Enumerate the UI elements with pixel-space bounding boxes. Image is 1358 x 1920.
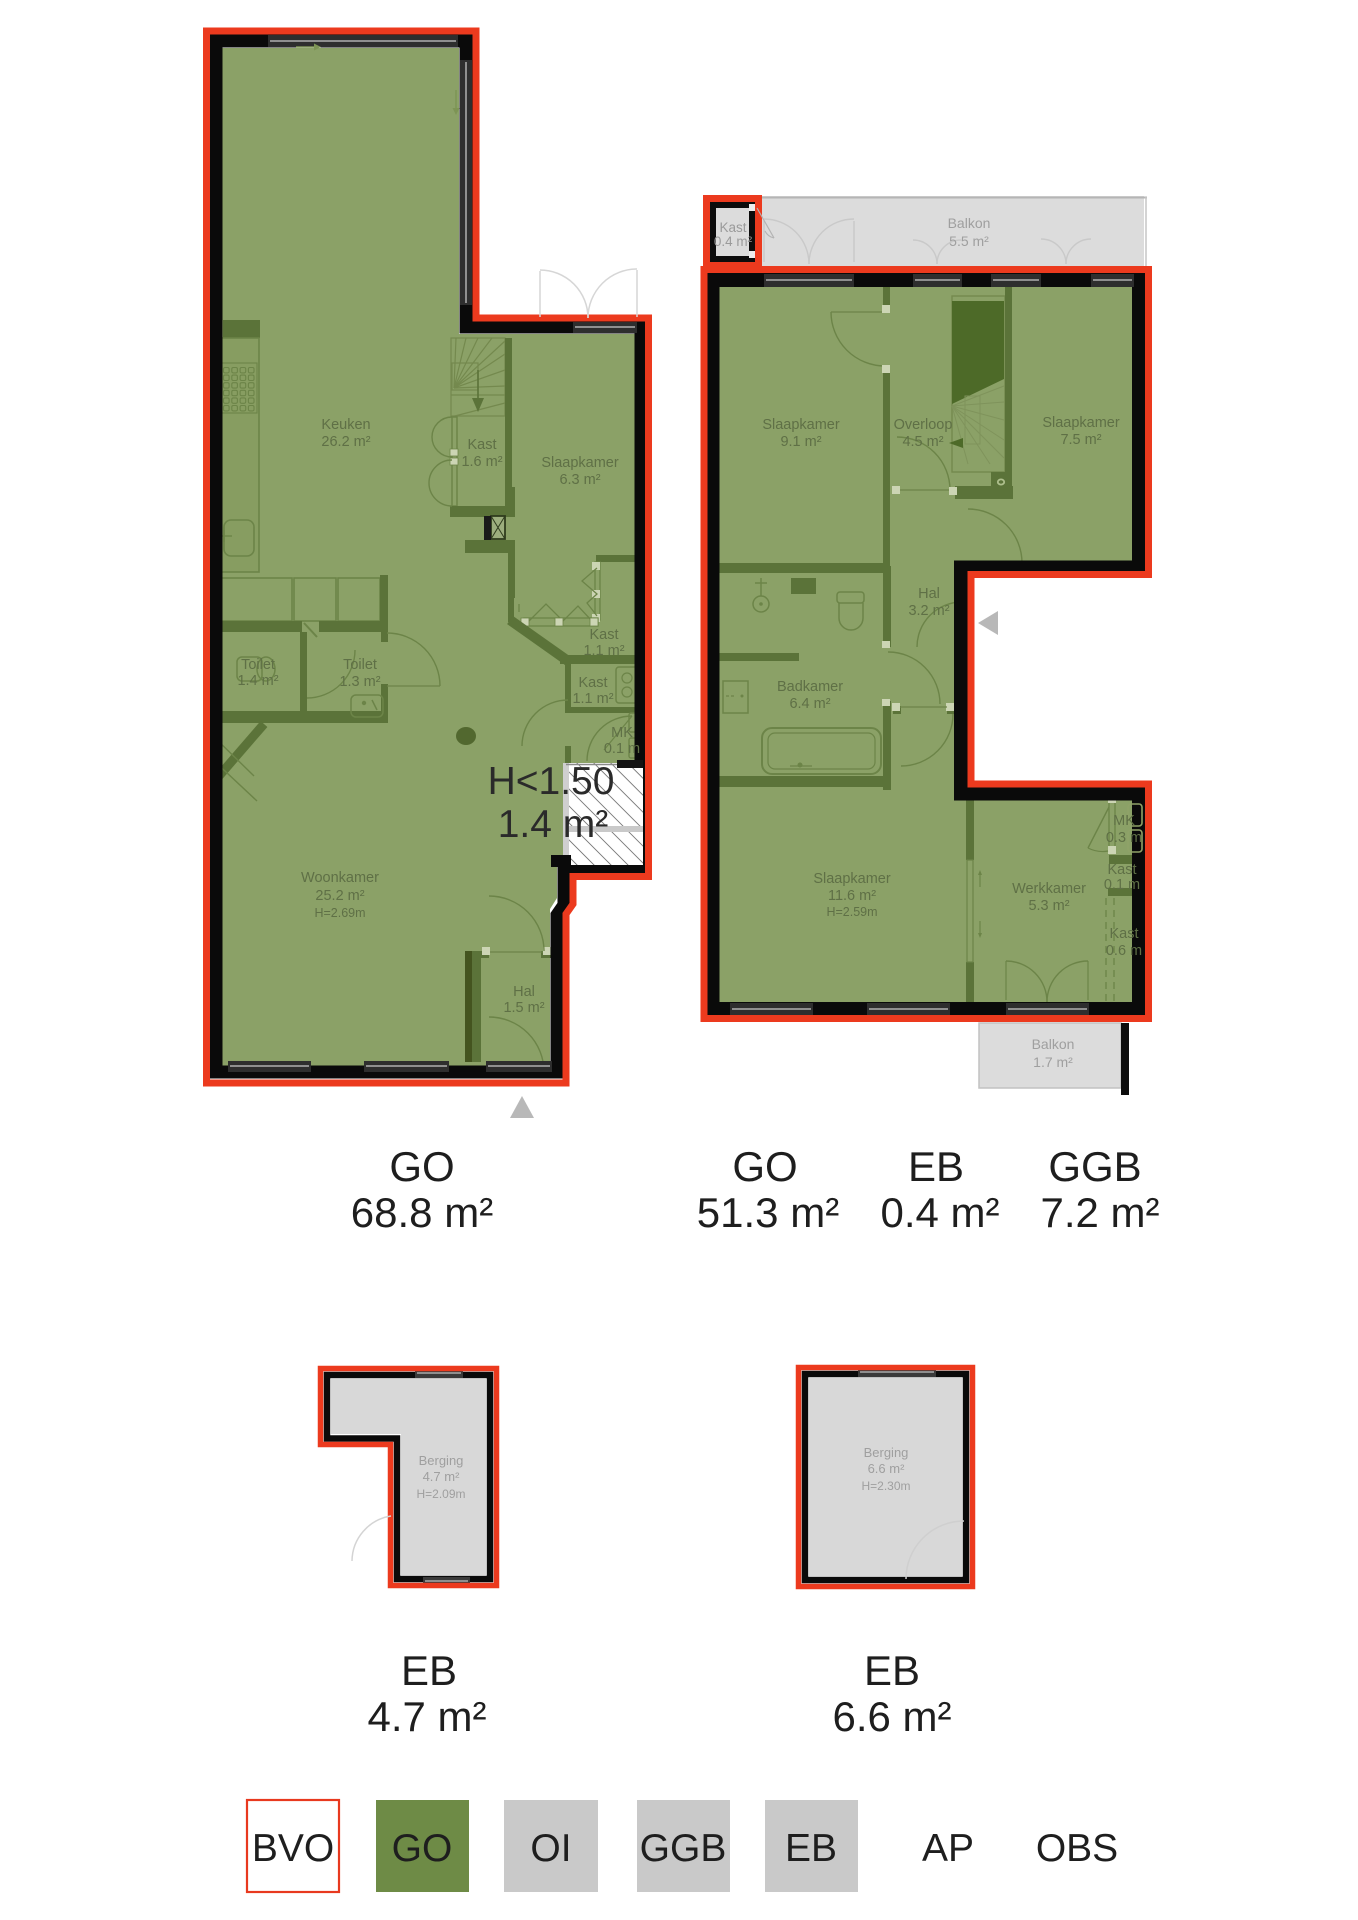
svg-text:Badkamer: Badkamer <box>777 679 843 695</box>
svg-text:5.3 m²: 5.3 m² <box>1028 898 1069 914</box>
svg-text:5.5 m²: 5.5 m² <box>949 233 989 249</box>
svg-text:H=2.30m: H=2.30m <box>861 1479 910 1493</box>
svg-text:GO: GO <box>732 1143 797 1190</box>
svg-text:AP: AP <box>922 1827 974 1870</box>
svg-text:GGB: GGB <box>1048 1143 1141 1190</box>
svg-text:MK: MK <box>611 725 633 741</box>
svg-text:7.5 m²: 7.5 m² <box>1060 432 1101 448</box>
svg-text:1.3 m²: 1.3 m² <box>339 674 380 690</box>
svg-text:4.7 m²: 4.7 m² <box>367 1693 486 1740</box>
svg-text:26.2 m²: 26.2 m² <box>321 434 370 450</box>
svg-text:MK: MK <box>1113 813 1135 829</box>
svg-text:BVO: BVO <box>252 1827 334 1870</box>
svg-text:0.1 m: 0.1 m <box>604 741 640 757</box>
svg-text:1.7 m²: 1.7 m² <box>1033 1054 1073 1070</box>
svg-text:4.7 m²: 4.7 m² <box>423 1469 461 1484</box>
svg-text:7.2 m²: 7.2 m² <box>1040 1189 1159 1236</box>
svg-text:EB: EB <box>908 1143 964 1190</box>
svg-text:Slaapkamer: Slaapkamer <box>762 417 840 433</box>
svg-text:Slaapkamer: Slaapkamer <box>1042 415 1120 431</box>
svg-text:Kast: Kast <box>467 437 496 453</box>
svg-text:9.1 m²: 9.1 m² <box>780 434 821 450</box>
svg-text:Hal: Hal <box>513 984 535 1000</box>
svg-text:OI: OI <box>530 1827 571 1870</box>
svg-text:6.4 m²: 6.4 m² <box>789 696 830 712</box>
svg-text:1.1 m²: 1.1 m² <box>583 643 624 659</box>
svg-text:1.5 m²: 1.5 m² <box>503 1000 544 1016</box>
svg-text:Kast: Kast <box>578 675 607 691</box>
svg-text:25.2 m²: 25.2 m² <box>315 888 364 904</box>
svg-text:6.6 m²: 6.6 m² <box>868 1461 906 1476</box>
svg-text:Kast: Kast <box>589 627 618 643</box>
svg-text:Slaapkamer: Slaapkamer <box>813 871 891 887</box>
svg-text:H<1.50: H<1.50 <box>488 760 615 803</box>
svg-text:Kast: Kast <box>1109 926 1138 942</box>
svg-text:Slaapkamer: Slaapkamer <box>541 455 619 471</box>
svg-text:Kast: Kast <box>1107 862 1136 878</box>
svg-text:4.5 m²: 4.5 m² <box>902 434 943 450</box>
svg-text:GO: GO <box>389 1143 454 1190</box>
svg-text:1.6 m²: 1.6 m² <box>461 454 502 470</box>
svg-text:Berging: Berging <box>419 1453 464 1468</box>
svg-text:1.4 m²: 1.4 m² <box>237 673 278 689</box>
svg-text:H=2.59m: H=2.59m <box>826 905 877 919</box>
svg-text:H=2.09m: H=2.09m <box>416 1487 465 1501</box>
svg-text:EB: EB <box>401 1647 457 1694</box>
svg-text:Balkon: Balkon <box>948 215 991 231</box>
svg-text:Balkon: Balkon <box>1032 1036 1075 1052</box>
svg-text:3.2 m²: 3.2 m² <box>908 603 949 619</box>
svg-text:Woonkamer: Woonkamer <box>301 870 379 886</box>
svg-text:EB: EB <box>864 1647 920 1694</box>
svg-text:68.8 m²: 68.8 m² <box>351 1189 493 1236</box>
svg-text:Werkkamer: Werkkamer <box>1012 881 1086 897</box>
svg-text:Keuken: Keuken <box>321 417 370 433</box>
svg-text:Overloop: Overloop <box>894 417 953 433</box>
svg-text:Toilet: Toilet <box>343 657 377 673</box>
svg-text:GGB: GGB <box>640 1827 727 1870</box>
svg-text:H=2.69m: H=2.69m <box>314 906 365 920</box>
svg-text:0.4 m²: 0.4 m² <box>714 234 753 249</box>
svg-text:1.1 m²: 1.1 m² <box>572 691 613 707</box>
svg-text:Hal: Hal <box>918 586 940 602</box>
svg-text:0.6 m: 0.6 m <box>1106 943 1142 959</box>
svg-text:0.1 m: 0.1 m <box>1104 877 1140 893</box>
svg-text:Berging: Berging <box>864 1445 909 1460</box>
svg-text:1.4 m²: 1.4 m² <box>498 803 609 846</box>
svg-text:0.3 m: 0.3 m <box>1106 830 1142 846</box>
svg-text:GO: GO <box>392 1827 453 1870</box>
svg-text:EB: EB <box>785 1827 837 1870</box>
svg-text:6.3 m²: 6.3 m² <box>559 472 600 488</box>
svg-text:Toilet: Toilet <box>241 657 275 673</box>
svg-text:OBS: OBS <box>1036 1827 1118 1870</box>
svg-text:11.6 m²: 11.6 m² <box>828 888 876 904</box>
svg-text:Kast: Kast <box>719 220 746 235</box>
svg-text:51.3 m²: 51.3 m² <box>697 1189 839 1236</box>
svg-text:6.6 m²: 6.6 m² <box>832 1693 951 1740</box>
svg-text:0.4 m²: 0.4 m² <box>880 1189 999 1236</box>
